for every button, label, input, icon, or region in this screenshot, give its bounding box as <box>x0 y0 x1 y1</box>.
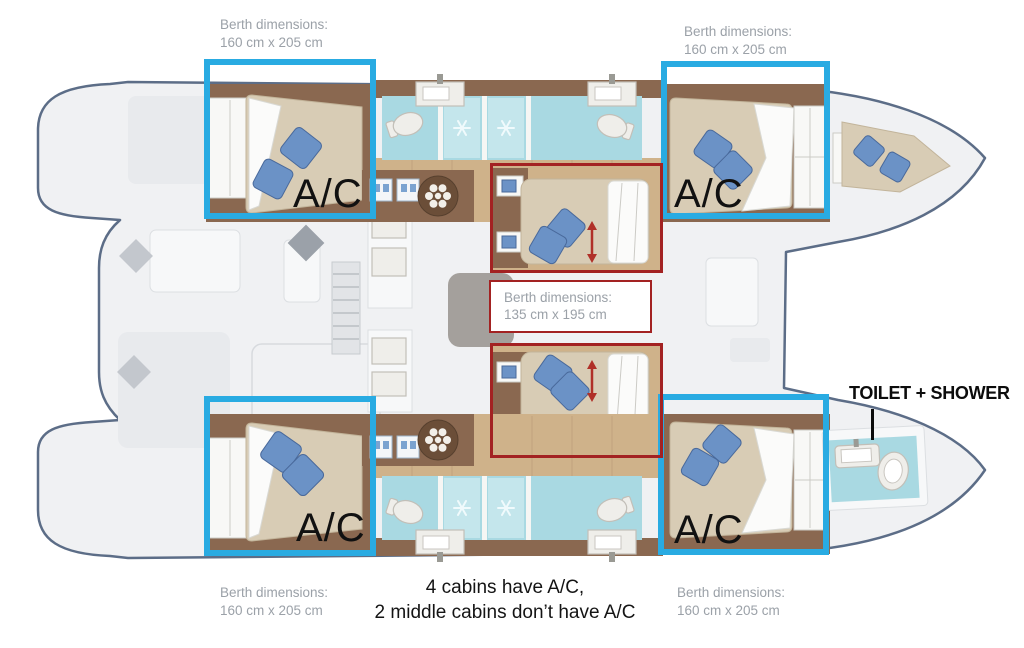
highlight-box-cabin-mid-top <box>490 163 663 273</box>
toilet-shower-label: TOILET + SHOWER <box>849 383 1010 404</box>
stove-icon <box>418 176 458 216</box>
annotated-catamaran-floorplan: A/C A/C A/C A/C Berth dimensions: 160 cm… <box>0 0 1024 648</box>
stairs-icon <box>332 262 360 354</box>
ac-summary-caption: 4 cabins have A/C, 2 middle cabins don’t… <box>305 575 705 625</box>
berth-label-line: 160 cm x 205 cm <box>684 41 792 59</box>
toilet-shower-pointer-line <box>871 409 874 440</box>
berth-label-line: Berth dimensions: <box>684 23 792 41</box>
berth-label-line: Berth dimensions: <box>504 289 650 306</box>
bathroom-bottom <box>375 476 663 562</box>
toilet-shower-compartment <box>822 425 928 510</box>
berth-info-box-middle: Berth dimensions: 135 cm x 195 cm <box>489 280 652 333</box>
bathroom-top <box>375 74 663 160</box>
berth-label-line: 135 cm x 195 cm <box>504 306 650 323</box>
sink-icon <box>588 530 636 562</box>
stove-icon <box>418 420 458 460</box>
berth-label-top-left: Berth dimensions: 160 cm x 205 cm <box>220 16 328 52</box>
berth-label-line: 160 cm x 205 cm <box>220 34 328 52</box>
ac-label-top-right: A/C <box>674 174 744 214</box>
ac-label-top-left: A/C <box>293 174 363 214</box>
saloon-seat <box>730 338 770 362</box>
sink-icon <box>416 530 464 562</box>
sink-icon <box>416 74 464 106</box>
highlight-box-cabin-mid-bottom <box>490 343 663 458</box>
berth-label-top-right: Berth dimensions: 160 cm x 205 cm <box>684 23 792 59</box>
nav-station <box>706 258 758 326</box>
berth-label-line: Berth dimensions: <box>220 16 328 34</box>
galley-bottom <box>362 414 474 466</box>
ac-label-bottom-right: A/C <box>674 510 744 550</box>
caption-line: 2 middle cabins don’t have A/C <box>305 600 705 625</box>
ac-label-bottom-left: A/C <box>296 508 366 548</box>
caption-line: 4 cabins have A/C, <box>305 575 705 600</box>
sink-icon <box>588 74 636 106</box>
galley-top <box>362 170 474 222</box>
